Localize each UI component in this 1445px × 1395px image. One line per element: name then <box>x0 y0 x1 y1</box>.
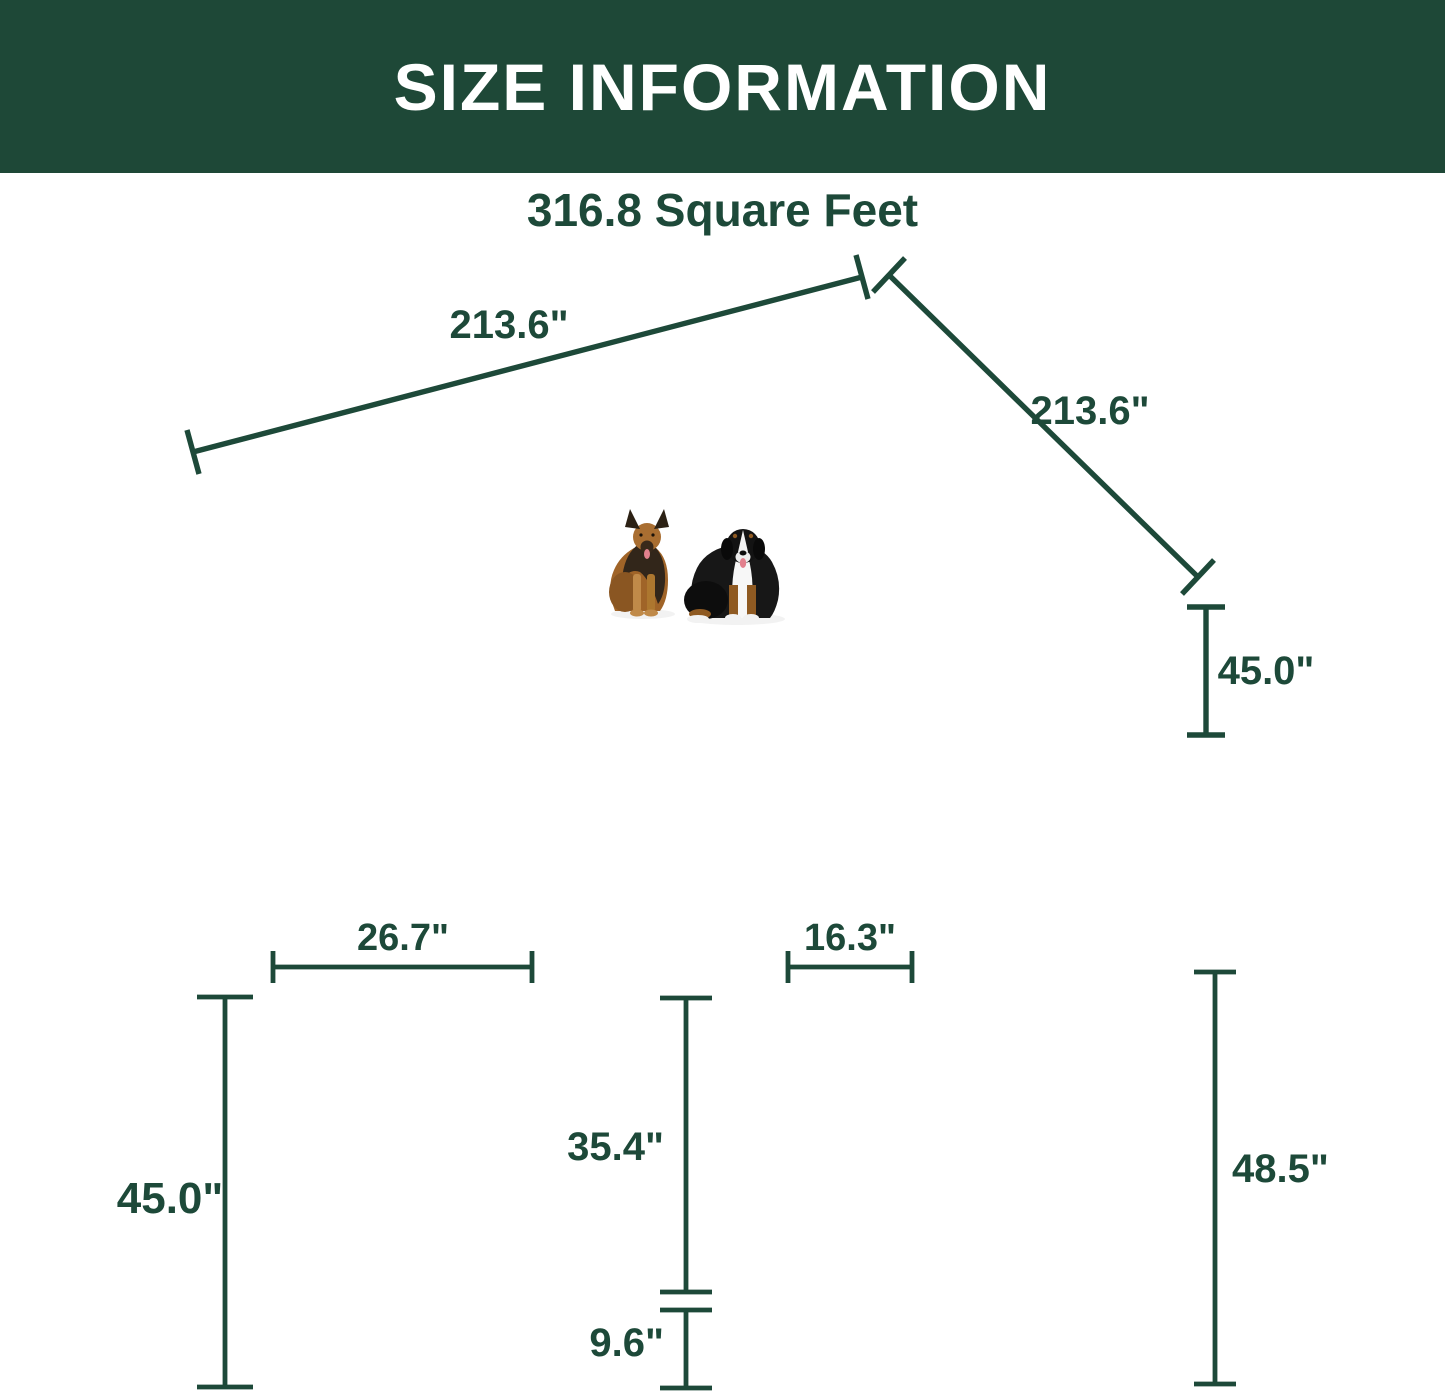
dim-pen-height-label: 45.0" <box>1218 649 1315 693</box>
dim-gate-door-height: 35.4" <box>567 998 712 1292</box>
dim-stake-height: 48.5" <box>1194 972 1329 1384</box>
dim-stake-height-label: 48.5" <box>1232 1147 1329 1191</box>
dim-gate-bottom-height-label: 9.6" <box>589 1321 664 1365</box>
dim-gate-door-height-label: 35.4" <box>567 1125 664 1169</box>
dim-pen-length-left: 213.6" <box>187 255 868 474</box>
dim-panel-width: 26.7" <box>273 917 532 983</box>
dim-panel-height-label: 45.0" <box>117 1174 224 1223</box>
dim-pen-height: 45.0" <box>1187 607 1314 735</box>
dim-gate-door-width: 16.3" <box>788 917 912 983</box>
dim-pen-length-left-label: 213.6" <box>449 303 568 347</box>
dim-gate-door-width-label: 16.3" <box>804 917 896 959</box>
size-information-page: SIZE INFORMATION 316.8 Square Feet <box>0 0 1445 1395</box>
dim-panel-height: 45.0" <box>117 997 253 1387</box>
dim-pen-length-right-label: 213.6" <box>1030 389 1149 433</box>
pen-floor <box>197 441 1170 898</box>
dim-gate-bottom-height: 9.6" <box>589 1310 712 1388</box>
dim-panel-width-label: 26.7" <box>357 917 449 959</box>
size-diagram: 213.6" 213.6" 45.0" 26.7" 45.0" <box>0 0 1445 1395</box>
